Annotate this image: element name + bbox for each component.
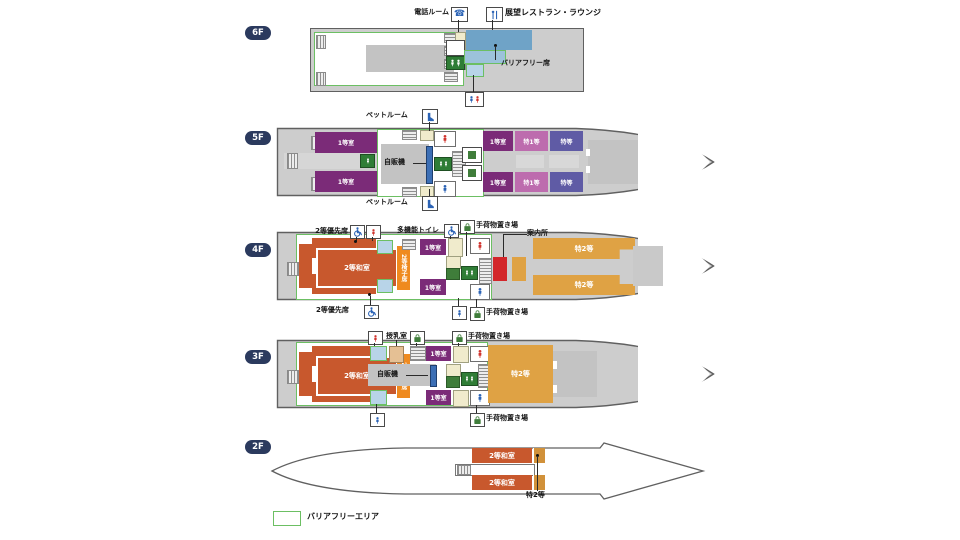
toilet-women-icon — [470, 346, 490, 362]
room-tatami-2nd: 2等和室 — [472, 475, 532, 490]
phone-room-label: 電話ルーム — [394, 9, 449, 17]
restaurant-lounge-area — [466, 30, 532, 50]
elevator-icon — [446, 56, 465, 70]
room-special-2nd-strip — [533, 448, 545, 463]
legend-swatch-barrier-free — [273, 511, 301, 526]
room-first-class: 1等室 — [315, 132, 377, 153]
stairs-icon — [287, 153, 298, 169]
room-first-class: 1等室 — [420, 279, 446, 295]
vending-machine — [426, 146, 433, 184]
wheelchair-icon — [350, 225, 365, 239]
leader-line — [376, 404, 377, 413]
barrier-free-seat-area — [464, 50, 506, 64]
multi-toilet-area — [448, 238, 463, 257]
deck-plan-diagram: 6F 5F 4F 3F 2F ☎ 電話ルーム 展望レストラン・ラウンジ バリアフ… — [0, 0, 960, 540]
luggage-bag-icon — [470, 307, 485, 321]
stairs-icon — [402, 187, 417, 197]
luggage-rack — [410, 346, 426, 361]
leader-line — [374, 343, 375, 346]
bow-notch — [586, 149, 590, 156]
floor-badge-6f: 6F — [245, 26, 271, 40]
bow-notch — [553, 361, 557, 369]
pet-room-label: ペットルーム — [366, 199, 408, 207]
bow-block-5f — [588, 140, 638, 184]
priority-2nd-label: 2等優先席 — [316, 307, 349, 315]
room-first-class: 1等室 — [426, 346, 451, 361]
legend-label-barrier-free: バリアフリーエリア — [307, 513, 379, 522]
stairs-icon — [444, 72, 458, 82]
phone-glyph: ☎ — [454, 10, 465, 19]
room-deluxe: 特等 — [550, 172, 583, 192]
luggage-label: 手荷物置き場 — [486, 415, 528, 423]
shower-area — [453, 346, 469, 363]
leader-line — [458, 343, 459, 346]
luggage-label: 手荷物置き場 — [468, 333, 510, 341]
room-chair-2nd: 2等椅子席 — [397, 246, 410, 290]
room-special-2nd-strip — [533, 475, 545, 490]
luggage-box — [446, 268, 460, 280]
bag-icon — [468, 151, 476, 159]
leader-line — [458, 20, 459, 32]
toilet-men-icon — [452, 306, 467, 320]
room-first-class: 1等室 — [483, 131, 513, 151]
bow-block-4f — [633, 246, 663, 286]
toilet-women-icon — [434, 131, 456, 147]
luggage-bag-icon — [410, 331, 425, 345]
toilet-area — [370, 346, 387, 361]
deck-6f-center-block — [366, 45, 454, 72]
toilet-men-icon — [370, 413, 385, 427]
luggage-bag-icon — [452, 331, 467, 345]
leader-line — [537, 456, 538, 491]
service-box — [446, 40, 465, 56]
leader-line — [503, 234, 504, 257]
room-special-first: 特1等 — [515, 131, 548, 151]
pet-boot-icon — [422, 196, 438, 211]
leader-dot — [368, 293, 371, 296]
info-desk-area — [493, 257, 507, 281]
restaurant-lounge-label: 展望レストラン・ラウンジ — [505, 9, 601, 18]
stairs-icon — [316, 72, 326, 86]
wheelchair-icon — [364, 305, 379, 319]
floor-badge-3f: 3F — [245, 350, 271, 364]
pet-boot-icon — [422, 109, 438, 124]
floor-badge-4f: 4F — [245, 243, 271, 257]
leader-line — [450, 236, 451, 239]
leader-line — [370, 296, 371, 305]
leader-line — [416, 343, 417, 346]
leader-line — [458, 298, 459, 306]
leader-line — [413, 163, 426, 164]
elevator-icon — [461, 266, 478, 280]
room-tatami-2nd: 2等和室 — [472, 448, 532, 463]
barrier-free-seat-label: バリアフリー席 — [501, 60, 550, 68]
elevator-icon — [434, 157, 452, 171]
room-first-class: 1等室 — [483, 172, 513, 192]
vending-machine — [430, 365, 437, 387]
luggage-bag-icon — [470, 413, 485, 427]
leader-line — [372, 237, 373, 241]
wheelchair-icon — [444, 224, 459, 238]
locker-box — [462, 165, 482, 181]
leader-line — [466, 232, 467, 256]
leader-line — [503, 234, 527, 235]
info-desk-label: 案内所 — [527, 230, 548, 238]
room-special-first: 特1等 — [515, 172, 548, 192]
toilet-area-6f — [466, 64, 484, 77]
special-2nd-label: 特2等 — [526, 492, 545, 500]
phone-icon: ☎ — [451, 7, 468, 22]
berth-block — [299, 352, 312, 396]
floor-badge-2f: 2F — [245, 440, 271, 454]
stairs-icon — [402, 130, 417, 140]
toilet-men-icon — [470, 390, 490, 406]
luggage-label: 手荷物置き場 — [476, 222, 518, 230]
room-deluxe: 特等 — [550, 131, 583, 151]
room-first-class: 1等室 — [426, 390, 451, 405]
leader-line — [495, 46, 496, 60]
floor-badge-5f: 5F — [245, 131, 271, 145]
luggage-label: 手荷物置き場 — [486, 309, 528, 317]
locker-box — [462, 147, 482, 163]
stairs-icon — [402, 239, 416, 250]
luggage-bag-icon — [460, 220, 475, 234]
priority-2nd-label: 2等優先席 — [300, 228, 348, 236]
leader-line — [429, 122, 430, 131]
bow-notch — [586, 166, 590, 173]
stairs-icon — [316, 35, 326, 49]
corridor-block — [516, 155, 544, 168]
pet-room-label: ペットルーム — [366, 112, 408, 120]
leader-line — [476, 405, 477, 413]
toilet-area — [377, 279, 393, 293]
vending-label: 自販機 — [377, 371, 398, 379]
leader-line — [406, 375, 428, 376]
leader-line — [396, 340, 397, 346]
leader-line — [473, 75, 474, 92]
restaurant-icon — [486, 7, 503, 22]
toilet-mf-icon — [465, 92, 484, 107]
pet-room-area — [420, 130, 434, 141]
toilet-women-icon — [368, 331, 383, 345]
toilet-men-icon — [434, 181, 456, 197]
toilet-women-icon — [366, 225, 381, 239]
stairs-icon — [457, 465, 471, 475]
toilet-women-icon — [470, 238, 490, 254]
leader-line — [492, 20, 493, 30]
room-first-class: 1等室 — [315, 171, 377, 192]
bow-block-3f — [553, 351, 597, 397]
bow-notch — [553, 385, 557, 393]
nursing-room-area — [389, 346, 404, 363]
luggage-box — [446, 376, 460, 388]
leader-dot — [354, 240, 357, 243]
leader-line — [476, 299, 477, 307]
room-first-class: 1等室 — [420, 239, 446, 255]
elevator-icon — [360, 154, 375, 168]
berth-block — [299, 244, 312, 288]
toilet-men-icon — [470, 284, 490, 300]
leader-line — [429, 189, 430, 196]
toilet-area — [370, 390, 387, 405]
elevator-icon — [461, 372, 478, 386]
multi-toilet-label: 多機能トイレ — [397, 227, 439, 235]
stairs-icon — [287, 370, 299, 384]
room-special-2nd: 特2等 — [488, 345, 553, 403]
bag-icon — [468, 169, 476, 177]
room-block — [512, 257, 526, 281]
corridor-block — [549, 155, 579, 168]
stairs-icon — [479, 258, 492, 284]
stairs-icon — [287, 262, 299, 276]
shower-area — [453, 390, 469, 407]
toilet-area — [377, 240, 393, 254]
vending-label: 自販機 — [384, 159, 405, 167]
